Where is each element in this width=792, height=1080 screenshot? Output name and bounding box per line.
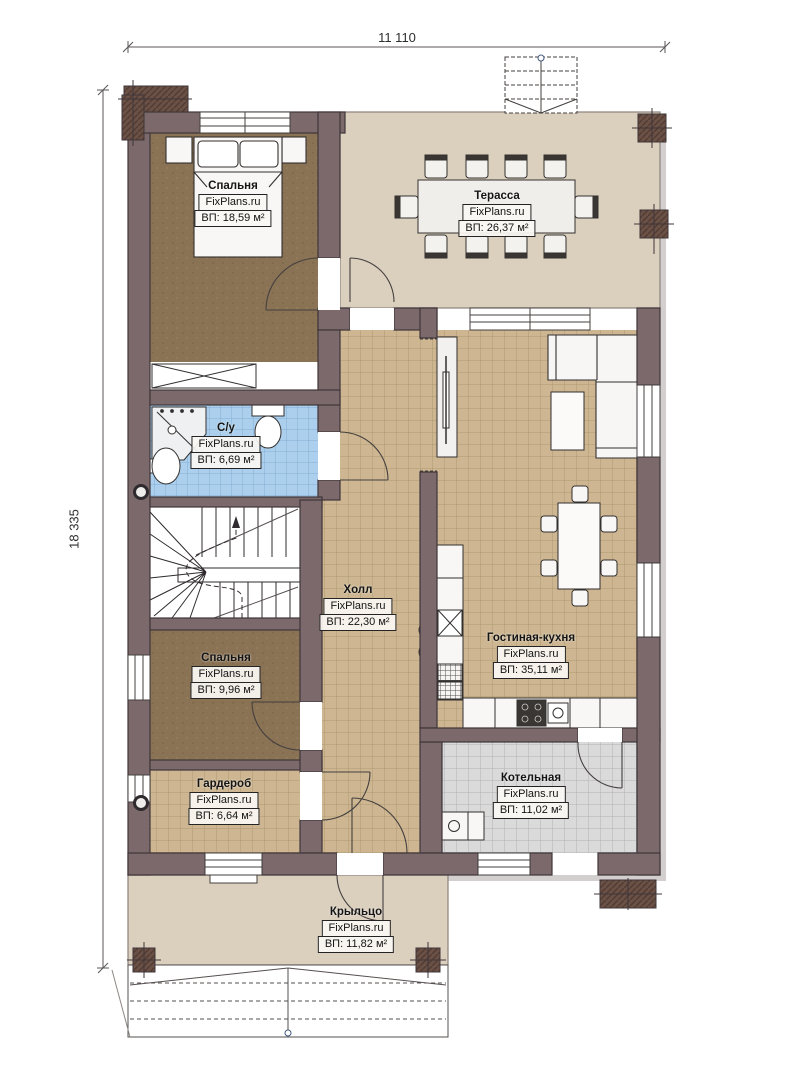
dimension-width-label: 11 110 bbox=[378, 30, 416, 45]
room-name: Крыльцо bbox=[330, 906, 382, 918]
room-name: Спальня bbox=[201, 652, 251, 664]
hall-floor-lower bbox=[322, 500, 420, 853]
chimney-bottom-right bbox=[594, 878, 662, 910]
window-boiler-bottom bbox=[478, 853, 530, 875]
room-label-wardrobe: Гардероб FixPlans.ru ВП: 6,64 м² bbox=[188, 778, 259, 825]
room-label-terrace: Терасса FixPlans.ru ВП: 26,37 м² bbox=[458, 190, 535, 237]
dimension-left bbox=[97, 85, 109, 973]
room-label-porch: Крыльцо FixPlans.ru ВП: 11,82 м² bbox=[318, 906, 394, 953]
window-living-right-1 bbox=[637, 385, 660, 457]
dimension-height-label: 18 335 bbox=[67, 509, 82, 549]
room-name: Терасса bbox=[474, 190, 520, 202]
brand-box: FixPlans.ru bbox=[321, 920, 390, 937]
hall-floor-upper bbox=[340, 330, 420, 500]
room-name: Гардероб bbox=[197, 778, 251, 790]
room-label-bedroom-1: Спальня FixPlans.ru ВП: 18,59 м² bbox=[194, 180, 271, 227]
room-name: С/у bbox=[217, 422, 235, 434]
window-living-terrace bbox=[470, 308, 590, 330]
area-box: ВП: 22,30 м² bbox=[319, 614, 396, 631]
area-box: ВП: 18,59 м² bbox=[194, 210, 271, 227]
window-bedroom2-left bbox=[128, 655, 150, 700]
brand-box: FixPlans.ru bbox=[496, 786, 565, 803]
brand-box: FixPlans.ru bbox=[323, 598, 392, 615]
room-label-living-kitchen: Гостиная-кухня FixPlans.ru ВП: 35,11 м² bbox=[487, 632, 575, 679]
floor-plan-canvas: Спальня FixPlans.ru ВП: 18,59 м² Терасса… bbox=[0, 0, 792, 1080]
porch-floor bbox=[128, 875, 448, 965]
area-box: ВП: 6,69 м² bbox=[190, 452, 261, 469]
room-name: Холл bbox=[344, 584, 373, 596]
room-label-bathroom: С/у FixPlans.ru ВП: 6,69 м² bbox=[190, 422, 261, 469]
window-bedroom1-top bbox=[200, 112, 290, 133]
brand-box: FixPlans.ru bbox=[191, 436, 260, 453]
brand-box: FixPlans.ru bbox=[462, 204, 531, 221]
room-name: Котельная bbox=[501, 772, 561, 784]
room-label-bedroom-2: Спальня FixPlans.ru ВП: 9,96 м² bbox=[190, 652, 261, 699]
hall-living-opening-floor bbox=[420, 338, 437, 472]
room-label-boiler-room: Котельная FixPlans.ru ВП: 11,02 м² bbox=[493, 772, 569, 819]
room-name: Спальня bbox=[208, 180, 258, 192]
room-name: Гостиная-кухня bbox=[487, 632, 575, 644]
porch-steps bbox=[112, 965, 448, 1037]
window-porch-bottom bbox=[205, 853, 262, 883]
brand-box: FixPlans.ru bbox=[496, 646, 565, 663]
brand-box: FixPlans.ru bbox=[198, 194, 267, 211]
staircase bbox=[150, 507, 300, 618]
area-box: ВП: 11,02 м² bbox=[493, 802, 569, 819]
brand-box: FixPlans.ru bbox=[189, 792, 258, 809]
closet bbox=[152, 364, 256, 388]
tv-unit bbox=[437, 337, 457, 457]
coffee-table bbox=[551, 392, 584, 450]
room-label-hall: Холл FixPlans.ru ВП: 22,30 м² bbox=[319, 584, 396, 631]
area-box: ВП: 26,37 м² bbox=[458, 220, 535, 237]
floor-plan-drawing bbox=[0, 0, 792, 1080]
window-living-right-2 bbox=[637, 563, 660, 637]
area-box: ВП: 6,64 м² bbox=[188, 808, 259, 825]
area-box: ВП: 11,82 м² bbox=[318, 936, 394, 953]
area-box: ВП: 35,11 м² bbox=[493, 662, 569, 679]
brand-box: FixPlans.ru bbox=[191, 666, 260, 683]
area-box: ВП: 9,96 м² bbox=[190, 682, 261, 699]
terrace-exterior-stair bbox=[505, 55, 577, 113]
